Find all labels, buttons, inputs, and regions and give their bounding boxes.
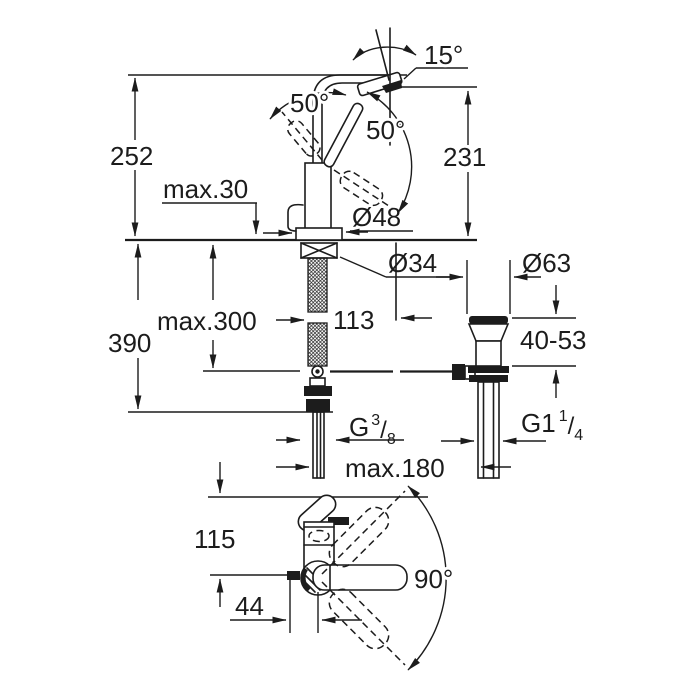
dim-max300: max.300 [157,245,304,371]
dim-231-label: 231 [443,142,486,172]
drain-assembly [468,316,509,478]
dim-40-53-label: 40-53 [520,325,587,355]
rod-knob [452,364,465,380]
drain-locknut [468,366,509,373]
dim-max300-label: max.300 [157,306,257,336]
mounting-shank [301,243,337,478]
dim-angle-90: 90° [408,486,453,670]
angle-lever-right-label: 50° [366,115,405,145]
dim-max30-label: max.30 [163,174,248,204]
dim-g38-label: G3/8 [349,412,396,448]
dim-115: 115 [194,462,235,607]
dim-115-label: 115 [194,524,235,554]
angle-tip-label: 15° [424,40,463,70]
handle-swing-view: 90° 115 44 [194,462,453,670]
dim-dia63: Ø63 [436,248,571,314]
angle-lever-left-label: 50° [290,88,329,118]
dim-252-label: 252 [110,141,153,171]
dim-g38: G3/8 [276,412,404,448]
diagram-canvas: 15° 50° 50° 252 231 max.30 [0,0,700,700]
supply-nut [304,386,332,396]
dim-dia34: Ø34 [340,248,450,278]
dim-g114: G11/4 [441,408,583,444]
dim-max180: max.180 [276,453,511,483]
dim-max30: max.30 [162,174,257,234]
base-flange [296,228,342,240]
supply-pipes [313,412,324,478]
dim-dia48-label: Ø48 [352,202,401,232]
angle-90-label: 90° [414,564,453,594]
dim-231: 231 [443,91,486,236]
drain-tailpipe [478,382,499,478]
pull-knob-top-view [287,571,300,580]
dim-40-53: 40-53 [512,285,587,398]
dim-44-label: 44 [235,591,264,621]
dim-dia34-label: Ø34 [388,248,437,278]
dim-angle-lever-left: 50° [270,88,346,119]
dim-g114-label: G11/4 [521,408,583,444]
dim-113-label: 113 [333,305,374,335]
faucet-column [305,163,331,229]
dim-dia63-label: Ø63 [522,248,571,278]
pull-rod-knob [288,205,303,231]
dim-390-label: 390 [108,328,151,358]
dim-113: 113 [333,305,432,335]
drain-plug [469,316,508,324]
dim-max180-label: max.180 [345,453,445,483]
lever-dashed-left [282,112,323,160]
dim-252: 252 [110,78,153,236]
side-view: 15° 50° 50° 252 231 max.30 [108,28,587,483]
handle-dashed-down [322,582,405,665]
faucet-dimension-diagram: 15° 50° 50° 252 231 max.30 [0,0,700,700]
